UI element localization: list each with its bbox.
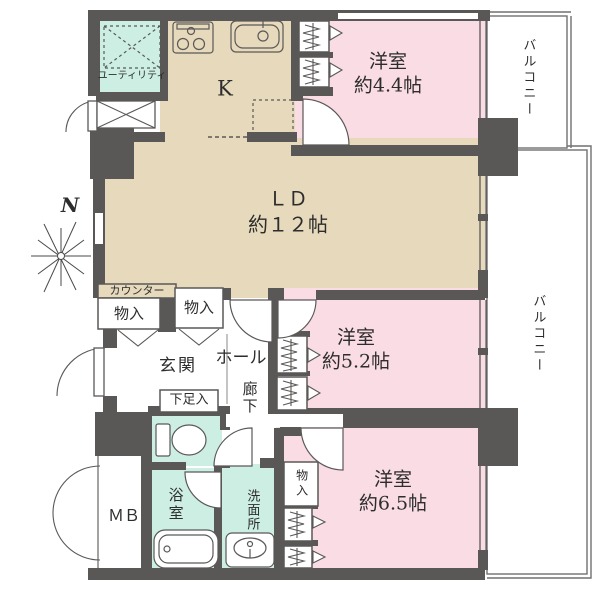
kitchen-sink-icon — [231, 21, 283, 52]
label-corridor: 廊下 — [239, 381, 258, 415]
label-kitchen: K — [217, 76, 233, 103]
label-balcony-right: バルコニー — [529, 294, 546, 374]
bathtub-icon — [154, 530, 218, 568]
label-shoe-cabinet: 下足入 — [169, 393, 208, 410]
label-meter-box: ＭＢ — [108, 506, 140, 526]
plan-overlay — [0, 0, 600, 600]
ld-door — [230, 300, 272, 342]
mb-door-lower — [53, 513, 100, 560]
closet-c — [277, 336, 307, 373]
closet-a — [299, 21, 329, 52]
washer-space-icon — [104, 26, 160, 68]
label-bedroom65: 洋室 約6.5帖 — [359, 468, 427, 517]
label-storage-right: 物入 — [184, 298, 214, 317]
label-living-dining: ＬＤ 約１２帖 — [248, 186, 328, 237]
label-bathroom: 浴室 — [165, 487, 184, 523]
vanity-sink-icon — [226, 533, 274, 567]
entrance-door-leaf — [94, 348, 104, 396]
label-washroom: 洗面所 — [243, 489, 260, 531]
label-bedroom44: 洋室 約4.4帖 — [354, 50, 422, 99]
label-hall: ホール — [216, 348, 267, 370]
stove-icon — [173, 22, 213, 53]
label-storage-left: 物入 — [114, 304, 144, 323]
label-counter: カウンター — [110, 284, 165, 298]
bathroom-door — [185, 472, 221, 508]
mb-door-upper — [53, 466, 100, 513]
compass-star — [31, 222, 91, 292]
label-utility: ユーティリティ — [98, 71, 167, 84]
closet-e — [284, 508, 312, 541]
closet-d — [277, 377, 307, 410]
closet-b — [299, 57, 329, 87]
label-storage-bottom: 物入 — [293, 469, 308, 499]
bedroom52-door — [278, 300, 316, 338]
label-balcony-top: バルコニー — [519, 38, 536, 118]
label-bedroom52: 洋室 約5.2帖 — [322, 326, 390, 375]
toilet-icon — [156, 424, 206, 456]
toilet-door — [214, 428, 252, 466]
label-compass-north: N — [61, 193, 79, 219]
floor-plan: ユーティリティ K 洋室 約4.4帖 ＬＤ 約１２帖 洋室 約5.2帖 洋室 約… — [0, 0, 600, 600]
porch-door-leaf — [88, 101, 97, 131]
bedroom44-door — [303, 99, 349, 145]
label-entrance: 玄関 — [159, 356, 197, 378]
